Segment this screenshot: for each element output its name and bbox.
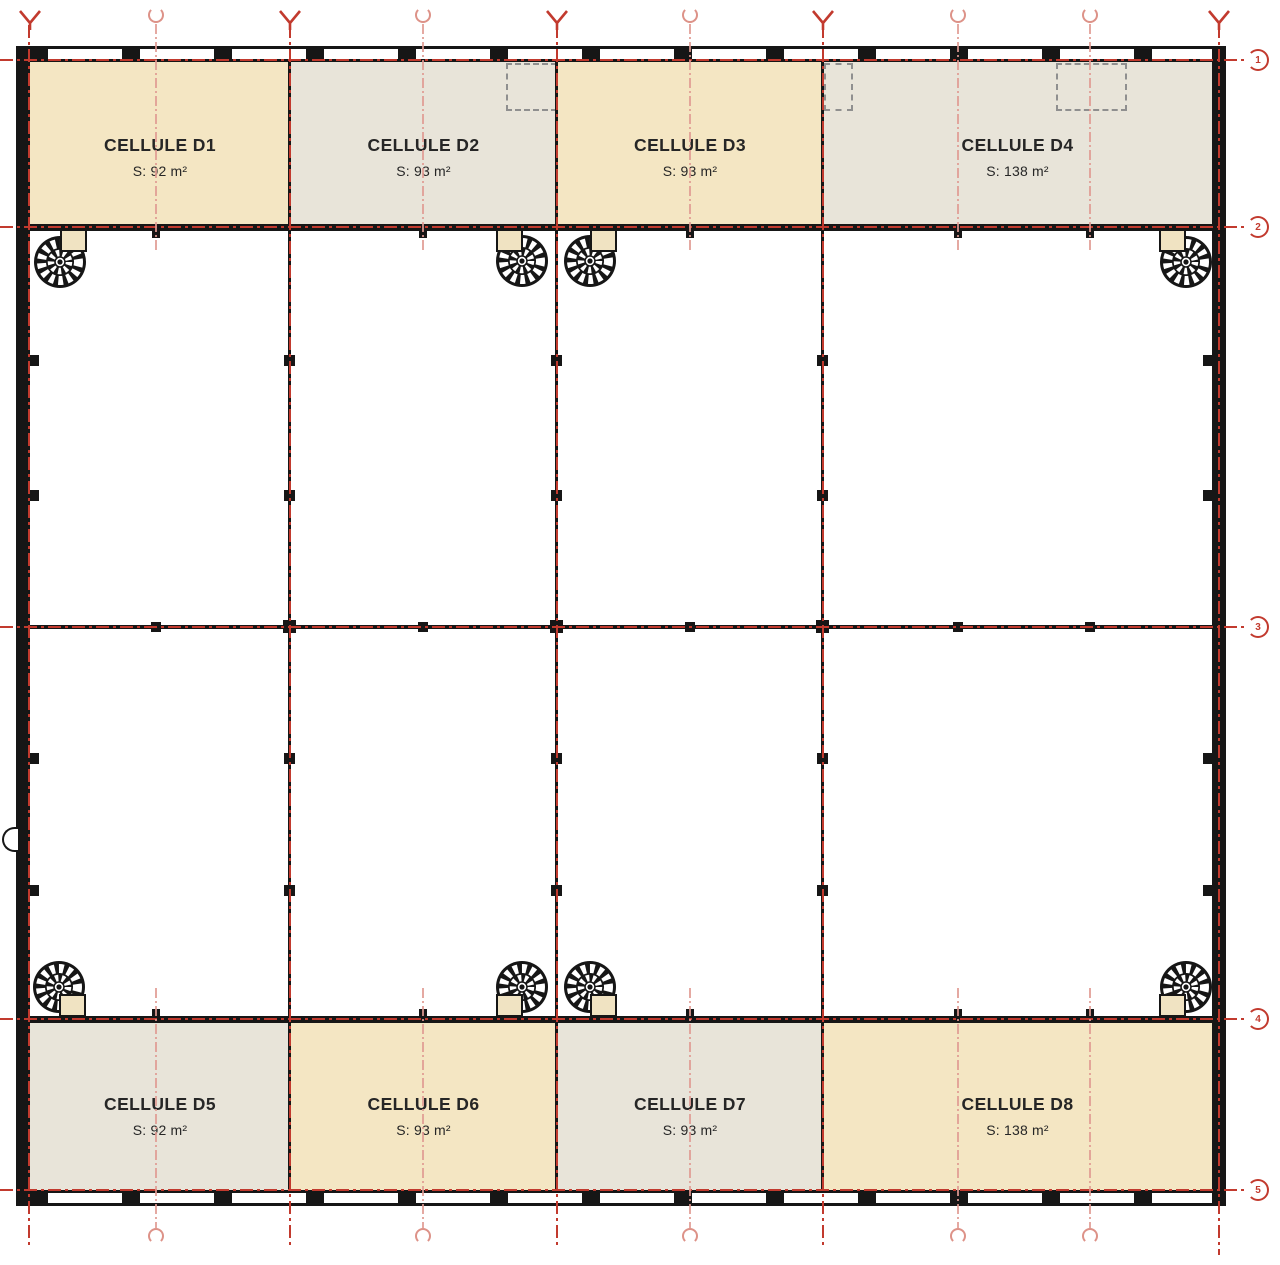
- axis-circle-icon: [950, 7, 966, 23]
- cell-D5: CELLULE D5 S: 92 m²: [30, 1023, 290, 1190]
- axis-row-1: [0, 59, 1247, 61]
- cell-area: S: 138 m²: [986, 163, 1049, 179]
- axis-mid-5-bottom: [1089, 988, 1091, 1228]
- axis-circle-icon: [148, 7, 164, 23]
- cell-D4: CELLULE D4 S: 138 m²: [823, 62, 1212, 225]
- grid-row-label: 3: [1255, 622, 1261, 633]
- axis-mid-3-bottom: [689, 988, 691, 1228]
- stair-landing: [590, 994, 617, 1017]
- axis-circle-icon: [682, 1228, 698, 1244]
- cell-name: CELLULE D8: [962, 1094, 1074, 1115]
- axis-row-3: [0, 626, 1247, 628]
- stair-landing: [1159, 229, 1186, 252]
- grid-bubble-icon: 2: [1247, 216, 1269, 238]
- stair-landing: [496, 994, 523, 1017]
- axis-mid-3-top: [689, 24, 691, 252]
- south-facade-windows: [30, 1190, 1212, 1206]
- axis-col-E: [1218, 25, 1220, 1255]
- axis-mid-4-bottom: [957, 988, 959, 1228]
- column-stub: [30, 490, 39, 501]
- column-stub: [30, 355, 39, 366]
- grid-bubble-icon: 5: [1247, 1179, 1269, 1201]
- window-strip: [30, 1193, 1212, 1203]
- cell-name: CELLULE D4: [962, 135, 1074, 156]
- stair-landing: [60, 229, 87, 252]
- cell-D8: CELLULE D8 S: 138 m²: [823, 1023, 1212, 1190]
- grid-row-label: 4: [1255, 1014, 1261, 1025]
- cell-area: S: 92 m²: [133, 163, 188, 179]
- axis-col-D: [822, 25, 824, 1245]
- stair-landing: [590, 229, 617, 252]
- axis-mid-1-top: [155, 24, 157, 252]
- door-icon: [2, 827, 18, 852]
- axis-circle-icon: [682, 7, 698, 23]
- grid-row-label: 1: [1255, 55, 1261, 66]
- axis-arrow-icon: [17, 8, 43, 30]
- axis-col-A: [28, 25, 30, 1245]
- axis-mid-5-top: [1089, 24, 1091, 252]
- axis-circle-icon: [148, 1228, 164, 1244]
- cell-area: S: 92 m²: [133, 1122, 188, 1138]
- axis-row-4: [0, 1018, 1247, 1020]
- cell-area: S: 138 m²: [986, 1122, 1049, 1138]
- roof-opening-dashed: [824, 63, 853, 111]
- column-stub: [1203, 355, 1212, 366]
- column-stub: [1203, 490, 1212, 501]
- axis-mid-4-top: [957, 24, 959, 252]
- axis-circle-icon: [415, 1228, 431, 1244]
- axis-col-C: [556, 25, 558, 1245]
- stair-landing: [1159, 994, 1186, 1017]
- column-stub: [30, 753, 39, 764]
- roof-opening-dashed: [506, 63, 557, 111]
- axis-col-B: [289, 25, 291, 1245]
- column-stub: [1203, 885, 1212, 896]
- axis-arrow-icon: [810, 8, 836, 30]
- grid-bubble-icon: 3: [1247, 616, 1269, 638]
- column-stub: [1203, 753, 1212, 764]
- column-stub: [30, 885, 39, 896]
- axis-arrow-icon: [1206, 8, 1232, 30]
- cell-name: CELLULE D5: [104, 1094, 216, 1115]
- stair-landing: [496, 229, 523, 252]
- cell-D1: CELLULE D1 S: 92 m²: [30, 62, 290, 225]
- axis-circle-icon: [950, 1228, 966, 1244]
- cell-name: CELLULE D1: [104, 135, 216, 156]
- axis-mid-2-bottom: [422, 988, 424, 1228]
- grid-bubble-icon: 4: [1247, 1008, 1269, 1030]
- axis-mid-2-top: [422, 24, 424, 252]
- grid-bubble-icon: 1: [1247, 49, 1269, 71]
- axis-circle-icon: [415, 7, 431, 23]
- axis-row-5: [0, 1189, 1247, 1191]
- grid-row-label: 2: [1255, 222, 1261, 233]
- axis-circle-icon: [1082, 7, 1098, 23]
- floor-plan: CELLULE D1 S: 92 m² CELLULE D2 S: 93 m² …: [0, 0, 1280, 1265]
- window-strip: [30, 49, 1212, 59]
- axis-arrow-icon: [277, 8, 303, 30]
- axis-row-2: [0, 226, 1247, 228]
- roof-opening-dashed: [1056, 63, 1127, 111]
- stair-landing: [59, 994, 86, 1017]
- axis-arrow-icon: [544, 8, 570, 30]
- axis-circle-icon: [1082, 1228, 1098, 1244]
- axis-mid-1-bottom: [155, 988, 157, 1228]
- grid-row-label: 5: [1255, 1185, 1261, 1196]
